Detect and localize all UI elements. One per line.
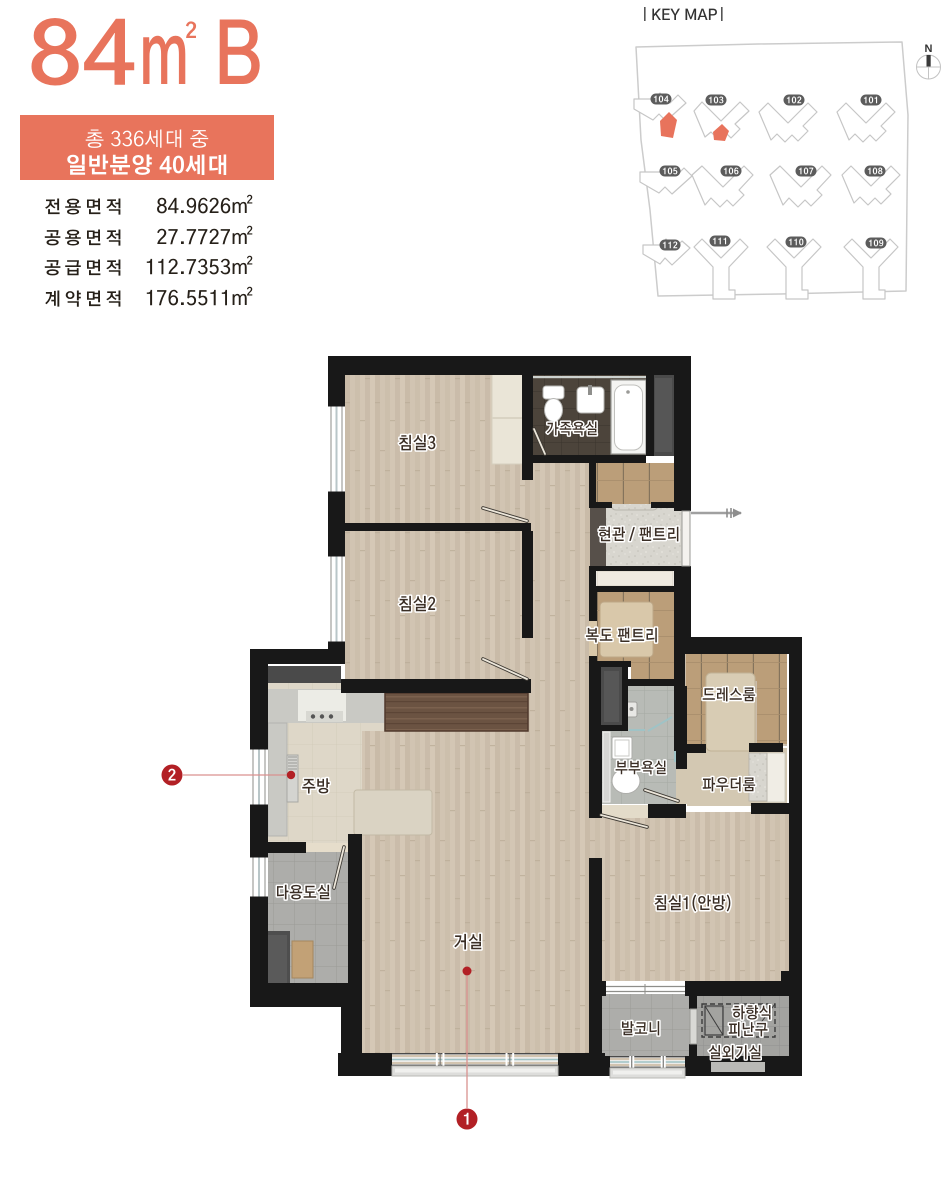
svg-text:N: N — [925, 43, 933, 55]
